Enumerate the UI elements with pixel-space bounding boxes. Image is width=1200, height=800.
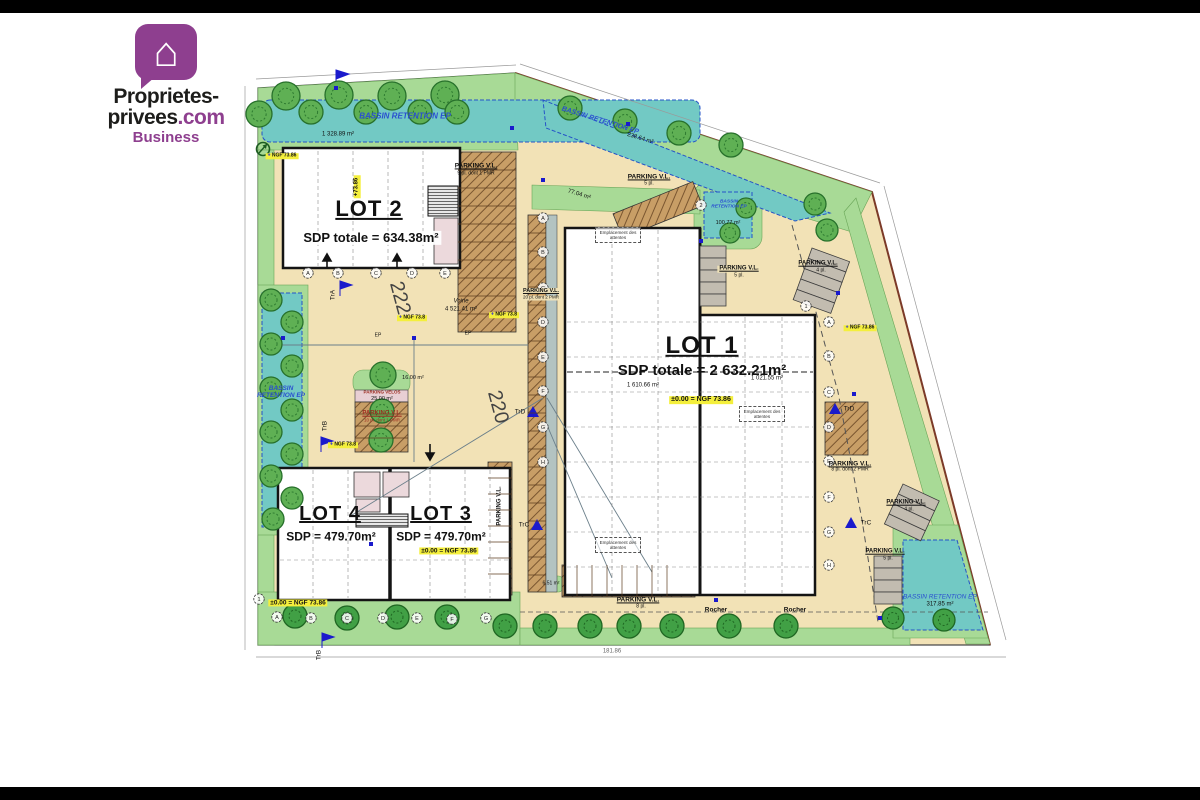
svg-text:E: E (415, 616, 419, 622)
tree-icon (408, 100, 432, 124)
tree-icon (246, 101, 272, 127)
tree-icon (558, 96, 582, 120)
svg-text:C: C (345, 616, 349, 622)
bush-icon (660, 614, 684, 638)
tree-icon (667, 121, 691, 145)
tree-icon (281, 399, 303, 421)
svg-text:E: E (443, 271, 447, 277)
grid-bubble: E (412, 613, 422, 623)
tree-icon (325, 81, 353, 109)
tree-icon (370, 399, 394, 423)
grid-bubble: H (824, 560, 834, 570)
tree-icon (613, 109, 637, 133)
svg-text:D: D (541, 320, 545, 326)
grid-bubble: A (272, 612, 282, 622)
tree-icon (299, 100, 323, 124)
survey-dot (878, 616, 882, 620)
bush-icon (774, 614, 798, 638)
survey-dot (510, 126, 514, 130)
grid-bubble: F (538, 386, 548, 396)
svg-text:G: G (541, 425, 545, 431)
survey-dot (412, 336, 416, 340)
tree-icon (260, 333, 282, 355)
svg-text:G: G (827, 530, 831, 536)
tree-icon (260, 465, 282, 487)
svg-text:B: B (827, 354, 831, 360)
tree-icon (281, 311, 303, 333)
grid-bubble: H (538, 457, 548, 467)
survey-dot (699, 239, 703, 243)
svg-text:C: C (827, 390, 831, 396)
tree-icon (370, 362, 396, 388)
tree-icon (272, 82, 300, 110)
bush-icon (385, 605, 409, 629)
svg-text:A: A (275, 615, 279, 621)
grid-bubble: A (303, 268, 313, 278)
tree-icon (262, 508, 284, 530)
tree-icon (719, 133, 743, 157)
bush-icon (617, 614, 641, 638)
bush-icon (283, 604, 307, 628)
bush-icon (717, 614, 741, 638)
grid-bubble: A (824, 317, 834, 327)
grid-bubble: D (538, 317, 548, 327)
tree-icon (281, 355, 303, 377)
survey-dot (626, 122, 630, 126)
survey-dot (714, 598, 718, 602)
svg-text:G: G (484, 616, 488, 622)
tree-icon (260, 421, 282, 443)
grid-bubble: F (447, 614, 457, 624)
grid-bubble: C (538, 283, 548, 293)
svg-text:B: B (541, 250, 545, 256)
survey-dot (281, 336, 285, 340)
stall-group (874, 556, 902, 604)
grid-bubble: F (824, 492, 834, 502)
svg-text:A: A (306, 271, 310, 277)
grid-bubble: D (378, 613, 388, 623)
tree-icon (445, 100, 469, 124)
svg-text:H: H (827, 563, 831, 569)
grid-bubble: B (824, 351, 834, 361)
tree-icon (260, 289, 282, 311)
svg-text:1: 1 (257, 597, 260, 603)
survey-dot (852, 392, 856, 396)
site-plan-svg: ABCDEABCDEFGABCDEFGHABCDEFGH121 (0, 0, 1200, 800)
grid-bubble: E (538, 352, 548, 362)
svg-text:B: B (309, 616, 313, 622)
survey-dot (541, 178, 545, 182)
listing-image: { "logo": {"line1":"Proprietes-","line2a… (0, 0, 1200, 800)
survey-dot (836, 291, 840, 295)
survey-dot (334, 86, 338, 90)
svg-text:D: D (410, 271, 414, 277)
bush-icon (533, 614, 557, 638)
grid-bubble: C (342, 613, 352, 623)
tree-icon (281, 487, 303, 509)
grid-bubble: C (824, 387, 834, 397)
svg-text:E: E (541, 355, 545, 361)
grid-bubble: 1 (801, 301, 811, 311)
grid-bubble: B (333, 268, 343, 278)
tree-icon (720, 223, 740, 243)
tree-icon (378, 82, 406, 110)
bush-icon (493, 614, 517, 638)
svg-text:D: D (827, 425, 831, 431)
svg-text:B: B (336, 271, 340, 277)
grid-bubble: G (481, 613, 491, 623)
svg-text:A: A (827, 320, 831, 326)
svg-text:E: E (827, 459, 831, 465)
grid-bubble: D (407, 268, 417, 278)
grid-bubble: 2 (696, 200, 706, 210)
grid-bubble: B (306, 613, 316, 623)
svg-text:D: D (381, 616, 385, 622)
tree-icon (369, 428, 393, 452)
grid-bubble: C (371, 268, 381, 278)
grid-bubble: 1 (254, 594, 264, 604)
svg-text:A: A (541, 216, 545, 222)
svg-text:C: C (541, 286, 545, 292)
svg-text:1: 1 (804, 304, 807, 310)
grid-bubble: G (538, 422, 548, 432)
grid-bubble: E (440, 268, 450, 278)
bush-icon (933, 609, 955, 631)
grid-bubble: E (824, 456, 834, 466)
tree-icon (816, 219, 838, 241)
tree-icon (736, 198, 756, 218)
grid-bubble: A (538, 213, 548, 223)
tree-icon (260, 377, 282, 399)
tree-icon (281, 443, 303, 465)
tree-icon (804, 193, 826, 215)
svg-text:2: 2 (699, 203, 702, 209)
survey-dot (369, 542, 373, 546)
stall-group (700, 246, 726, 306)
svg-text:C: C (374, 271, 378, 277)
tree-icon (354, 100, 378, 124)
grid-bubble: G (824, 527, 834, 537)
bush-icon (578, 614, 602, 638)
bush-icon (882, 607, 904, 629)
grid-bubble: B (538, 247, 548, 257)
grid-bubble: D (824, 422, 834, 432)
svg-text:H: H (541, 460, 545, 466)
